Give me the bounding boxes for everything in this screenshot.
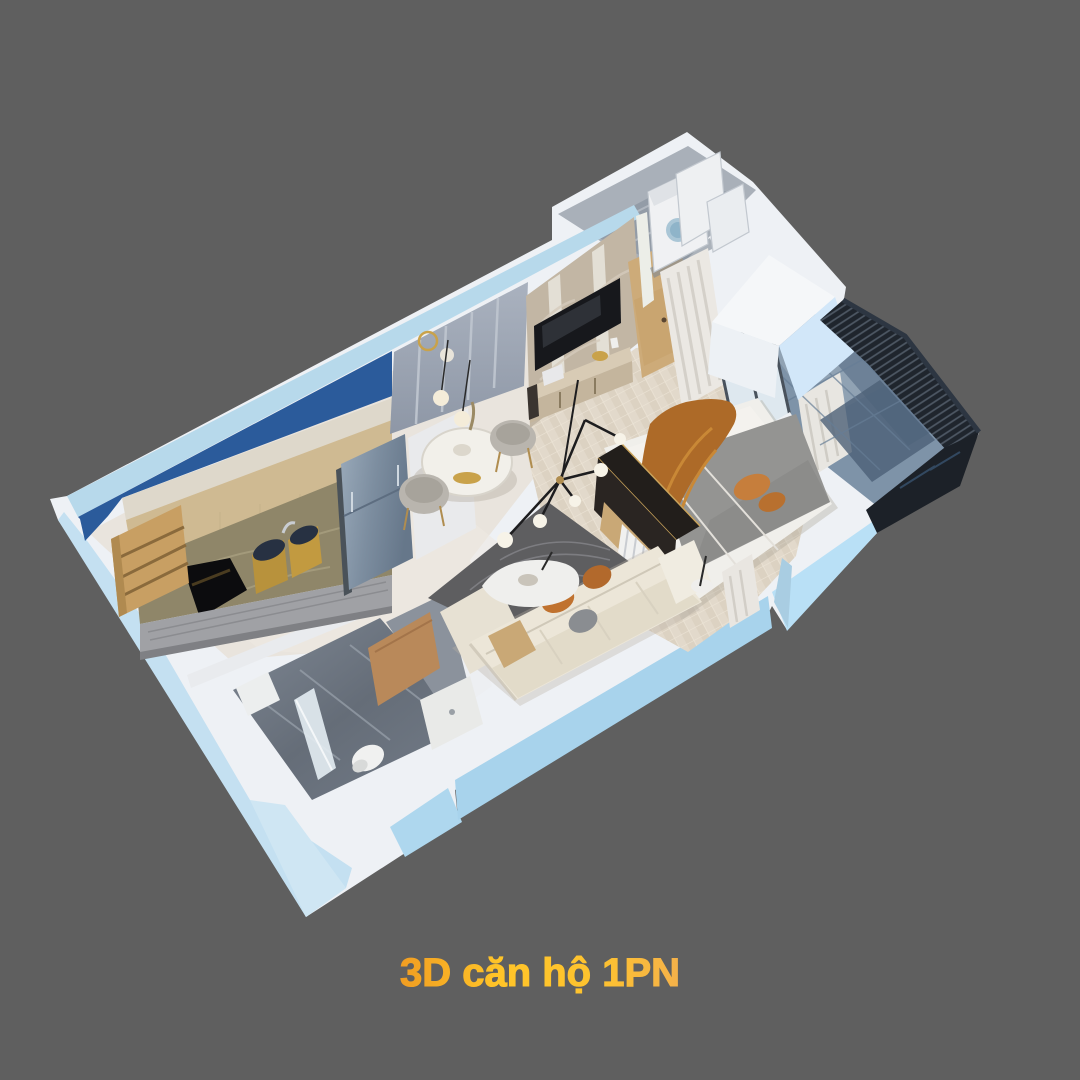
svg-text:3D căn hộ 1PN: 3D căn hộ 1PN [400,951,680,995]
